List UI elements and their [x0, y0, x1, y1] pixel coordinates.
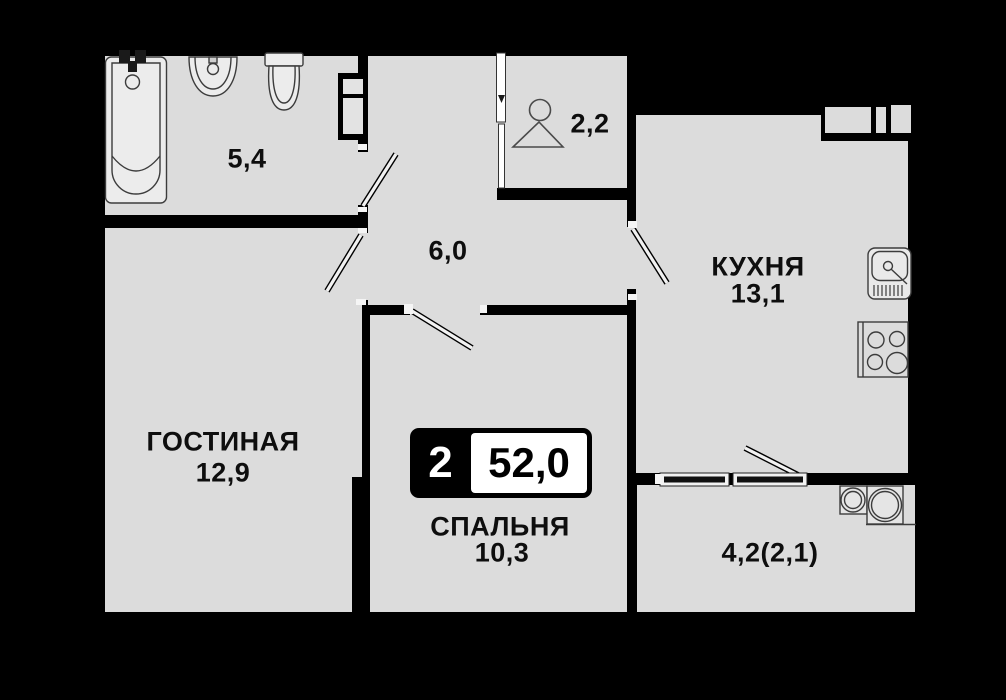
- sliding-door-icon: [497, 53, 506, 188]
- balcony-area-label: 4,2(2,1): [721, 538, 818, 569]
- living-area-label: 12,9: [196, 458, 251, 489]
- hanger-icon: [513, 100, 563, 148]
- kitchen-sink-icon: [868, 248, 911, 299]
- badge-total-area: 52,0: [471, 433, 587, 493]
- stove-icon: [858, 322, 908, 377]
- wash-basin-icon: [189, 57, 237, 96]
- apartment-badge: 2 52,0: [410, 428, 592, 498]
- bathtub-icon: [106, 50, 167, 203]
- boiler-icon: [866, 486, 916, 525]
- badge-rooms-count: 2: [410, 441, 471, 485]
- hallway-area-label: 6,0: [428, 236, 467, 267]
- bedroom-area-label: 10,3: [475, 538, 530, 569]
- bathroom-area-label: 5,4: [227, 144, 266, 175]
- living-name-label: ГОСТИНАЯ: [146, 427, 299, 458]
- balcony-window-icon: [655, 473, 807, 486]
- badge-total-area-value: 52,0: [488, 442, 570, 484]
- toilet-icon: [265, 53, 303, 110]
- duct-shaft: [338, 73, 368, 140]
- kitchen-area-label: 13,1: [731, 279, 786, 310]
- fixtures-layer: [0, 0, 1006, 700]
- wardrobe-area-label: 2,2: [570, 109, 609, 140]
- floor-plan: 5,4 2,2 6,0 КУХНЯ 13,1 ГОСТИНАЯ 12,9 СПА…: [0, 0, 1006, 700]
- washing-machine-icon: [840, 486, 867, 514]
